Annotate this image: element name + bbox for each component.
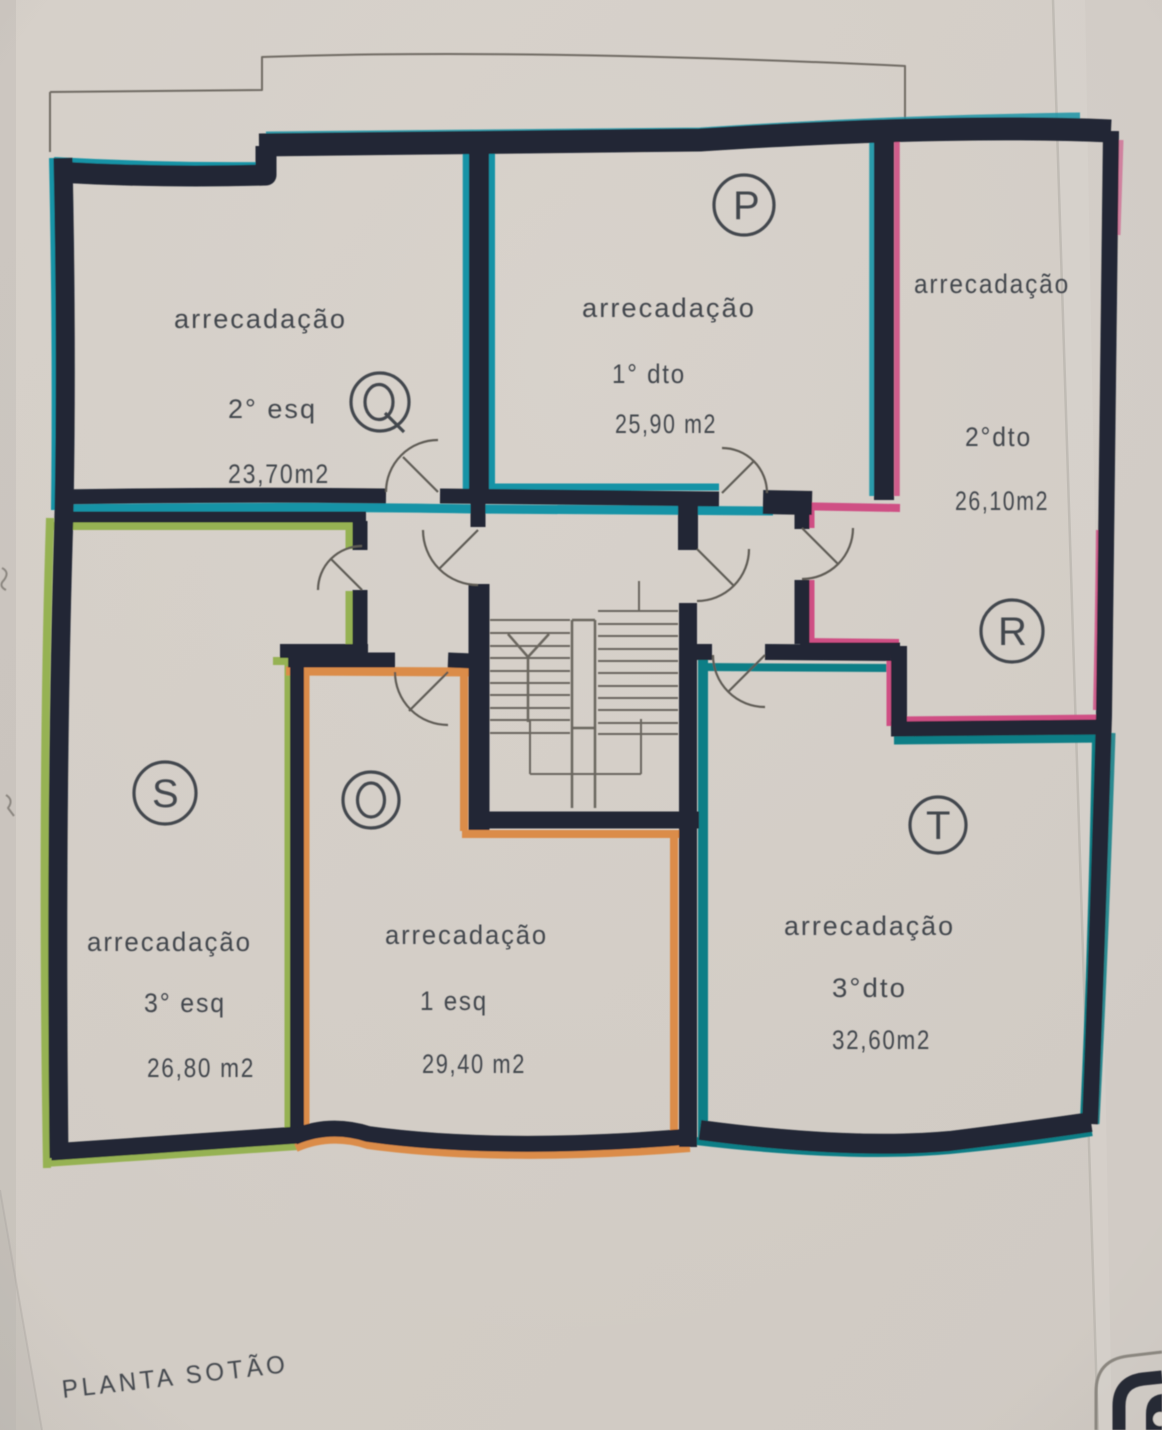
svg-text:arrecadação: arrecadação xyxy=(87,927,252,957)
svg-text:26,10m2: 26,10m2 xyxy=(955,486,1049,516)
svg-text:1° dto: 1° dto xyxy=(612,359,686,389)
svg-text:R: R xyxy=(998,610,1027,654)
svg-text:3° esq: 3° esq xyxy=(144,988,226,1018)
svg-text:arrecadação: arrecadação xyxy=(385,920,548,950)
svg-text:arrecadação: arrecadação xyxy=(914,269,1070,299)
svg-text:arrecadação: arrecadação xyxy=(582,293,756,323)
svg-text:3°dto: 3°dto xyxy=(832,973,907,1003)
svg-text:2°dto: 2°dto xyxy=(965,422,1032,452)
svg-text:25,90 m2: 25,90 m2 xyxy=(615,409,717,439)
svg-text:S: S xyxy=(152,772,179,816)
svg-text:P: P xyxy=(733,184,760,228)
svg-text:2° esq: 2° esq xyxy=(228,394,317,424)
svg-text:26,80 m2: 26,80 m2 xyxy=(147,1053,255,1083)
svg-text:32,60m2: 32,60m2 xyxy=(832,1025,931,1055)
svg-text:T: T xyxy=(926,804,950,848)
svg-text:29,40 m2: 29,40 m2 xyxy=(422,1049,526,1079)
svg-text:23,70m2: 23,70m2 xyxy=(228,459,330,489)
svg-text:arrecadação: arrecadação xyxy=(784,911,955,941)
svg-text:1 esq: 1 esq xyxy=(420,986,488,1016)
svg-text:arrecadação: arrecadação xyxy=(174,304,347,334)
